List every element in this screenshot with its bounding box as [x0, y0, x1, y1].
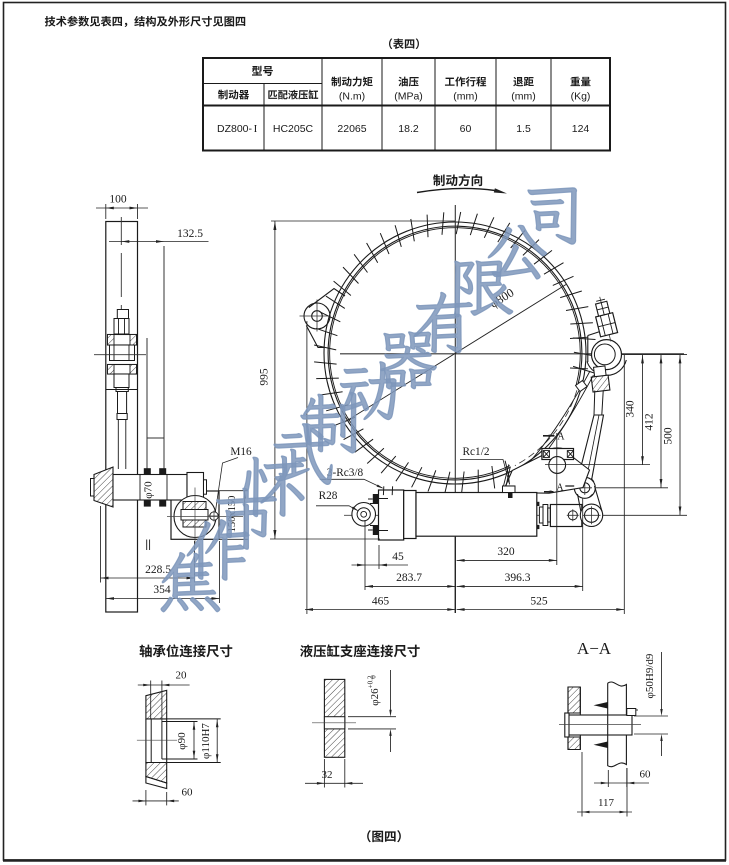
svg-text:500: 500: [663, 427, 675, 445]
svg-text:32: 32: [322, 769, 333, 781]
svg-text:525: 525: [530, 596, 548, 608]
svg-text:60: 60: [640, 769, 652, 781]
svg-text:412: 412: [644, 413, 656, 431]
svg-text:45: 45: [392, 551, 404, 563]
svg-text:60: 60: [182, 787, 194, 799]
svg-text:R28: R28: [319, 490, 338, 502]
svg-text:A: A: [557, 432, 565, 443]
svg-text:465: 465: [372, 596, 390, 608]
svg-text:(mm): (mm): [453, 91, 478, 103]
svg-text:283.7: 283.7: [396, 572, 422, 584]
svg-text:A: A: [556, 483, 564, 494]
svg-text:340: 340: [625, 400, 637, 418]
svg-text:(mm): (mm): [511, 91, 536, 103]
svg-text:0: 0: [370, 675, 378, 679]
svg-text:124: 124: [572, 123, 590, 135]
svg-text:22065: 22065: [337, 123, 366, 135]
svg-text:(N.m): (N.m): [339, 91, 365, 103]
svg-text:18.2: 18.2: [398, 123, 419, 135]
svg-text:396.3: 396.3: [505, 572, 531, 584]
svg-text:100: 100: [109, 194, 127, 206]
svg-text:995: 995: [259, 368, 271, 386]
svg-text:φ26: φ26: [369, 688, 381, 706]
svg-text:228.5: 228.5: [145, 564, 171, 576]
svg-text:20: 20: [176, 670, 188, 682]
svg-text:354: 354: [153, 584, 171, 596]
svg-text:117: 117: [598, 797, 615, 809]
svg-text:132.5: 132.5: [177, 228, 203, 240]
svg-text:320: 320: [497, 546, 515, 558]
svg-text:φ110H7: φ110H7: [200, 723, 212, 759]
svg-text:1.5: 1.5: [516, 123, 531, 135]
svg-text:(MPa): (MPa): [394, 91, 423, 103]
svg-text:60: 60: [460, 123, 472, 135]
svg-text:DZ800-: DZ800-: [217, 123, 253, 135]
svg-text:M16: M16: [230, 446, 252, 458]
svg-text:φ90: φ90: [176, 732, 188, 750]
svg-text:(Kg): (Kg): [571, 91, 591, 103]
svg-text:φ70: φ70: [143, 481, 155, 499]
svg-text:A−A: A−A: [577, 639, 612, 658]
svg-text:I: I: [254, 123, 258, 135]
svg-text:φ50H9/d9: φ50H9/d9: [644, 653, 656, 698]
svg-text:HC205C: HC205C: [273, 123, 314, 135]
svg-text:Rc1/2: Rc1/2: [463, 446, 490, 458]
